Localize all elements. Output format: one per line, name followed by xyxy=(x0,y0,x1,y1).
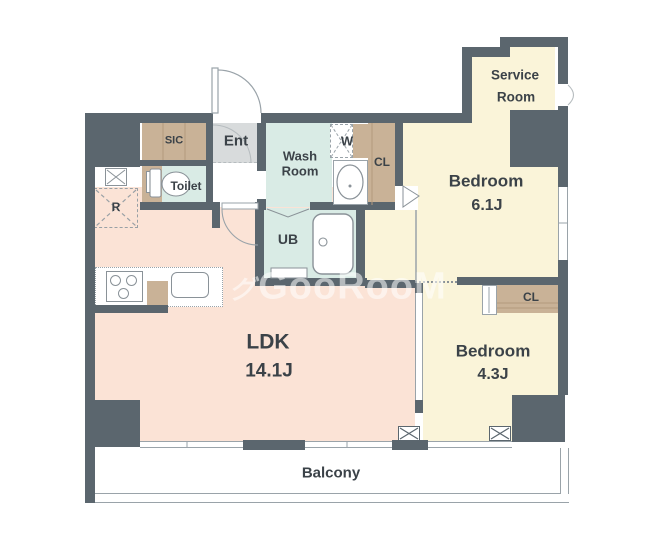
meter-box xyxy=(105,168,127,186)
label-shoe-closet: SIC xyxy=(165,136,183,147)
wall xyxy=(415,400,423,413)
wall-column xyxy=(510,110,568,167)
wall xyxy=(558,260,568,395)
wall-column xyxy=(85,113,140,167)
label-service-2: Room xyxy=(497,90,535,104)
label-ldk-name: LDK xyxy=(246,332,289,353)
wall xyxy=(140,202,213,210)
wall xyxy=(395,123,403,186)
wall xyxy=(392,440,428,450)
label-refrigerator: R xyxy=(112,201,121,213)
label-washroom-2: Room xyxy=(282,165,319,178)
wall-column xyxy=(85,400,140,447)
label-ldk-size: 14.1J xyxy=(245,362,293,381)
hallway-floor xyxy=(213,163,257,207)
floor-plan: SIC Ent Wash Room W CL Toilet Service Ro… xyxy=(0,0,664,560)
wall xyxy=(462,47,472,123)
label-bedroom-b-name: Bedroom xyxy=(456,343,531,360)
stove-burner xyxy=(126,275,137,286)
wall xyxy=(140,160,213,166)
watermark-prefix: グ xyxy=(229,275,256,305)
closet-b-door xyxy=(482,285,497,315)
watermark-text: GooRooM xyxy=(258,266,447,308)
label-service-1: Service xyxy=(491,68,539,82)
service-door-swing xyxy=(568,85,574,105)
wall xyxy=(243,440,305,450)
label-unit-bath: UB xyxy=(278,232,298,246)
shutter-box xyxy=(489,426,511,441)
service-door-opening xyxy=(558,84,568,106)
wall-column xyxy=(512,395,565,442)
watermark: グGooRooM xyxy=(229,266,447,309)
window-south xyxy=(140,441,512,448)
wall xyxy=(261,113,472,123)
balcony-rail-south xyxy=(95,493,569,503)
balcony-rail-east xyxy=(560,448,569,494)
sliding-door xyxy=(415,293,423,400)
toilet-cabinet-inset xyxy=(146,171,158,193)
label-bedroom-b-size: 4.3J xyxy=(477,367,508,383)
label-bedroom-a-size: 6.1J xyxy=(471,198,502,214)
label-bedroom-a-name: Bedroom xyxy=(449,173,524,190)
entrance-door-swing xyxy=(218,70,261,113)
washbasin-counter xyxy=(333,160,368,205)
label-balcony: Balcony xyxy=(302,466,360,481)
window-east xyxy=(558,187,568,260)
washroom-door-opening xyxy=(257,171,266,199)
label-toilet: Toilet xyxy=(170,180,201,192)
label-closet-b: CL xyxy=(523,291,539,303)
label-entrance: Ent xyxy=(224,134,248,149)
wall xyxy=(212,202,220,228)
label-closet-a: CL xyxy=(374,156,390,168)
wall xyxy=(558,37,568,84)
wall xyxy=(462,47,510,57)
kitchen-half-wall xyxy=(95,305,168,313)
shutter-box xyxy=(398,426,420,441)
wall xyxy=(558,167,568,187)
label-washroom-1: Wash xyxy=(283,150,317,163)
stove-burner xyxy=(110,275,121,286)
label-washer: W xyxy=(341,135,353,148)
stove-burner xyxy=(118,288,129,299)
entrance-door-leaf xyxy=(212,68,218,113)
wall xyxy=(457,277,558,285)
kitchen-sink xyxy=(171,272,209,298)
wall xyxy=(206,123,213,210)
bedroom-a-door-opening xyxy=(395,186,418,210)
washer-side-panel xyxy=(353,124,368,158)
kitchen-cabinet xyxy=(147,281,168,307)
